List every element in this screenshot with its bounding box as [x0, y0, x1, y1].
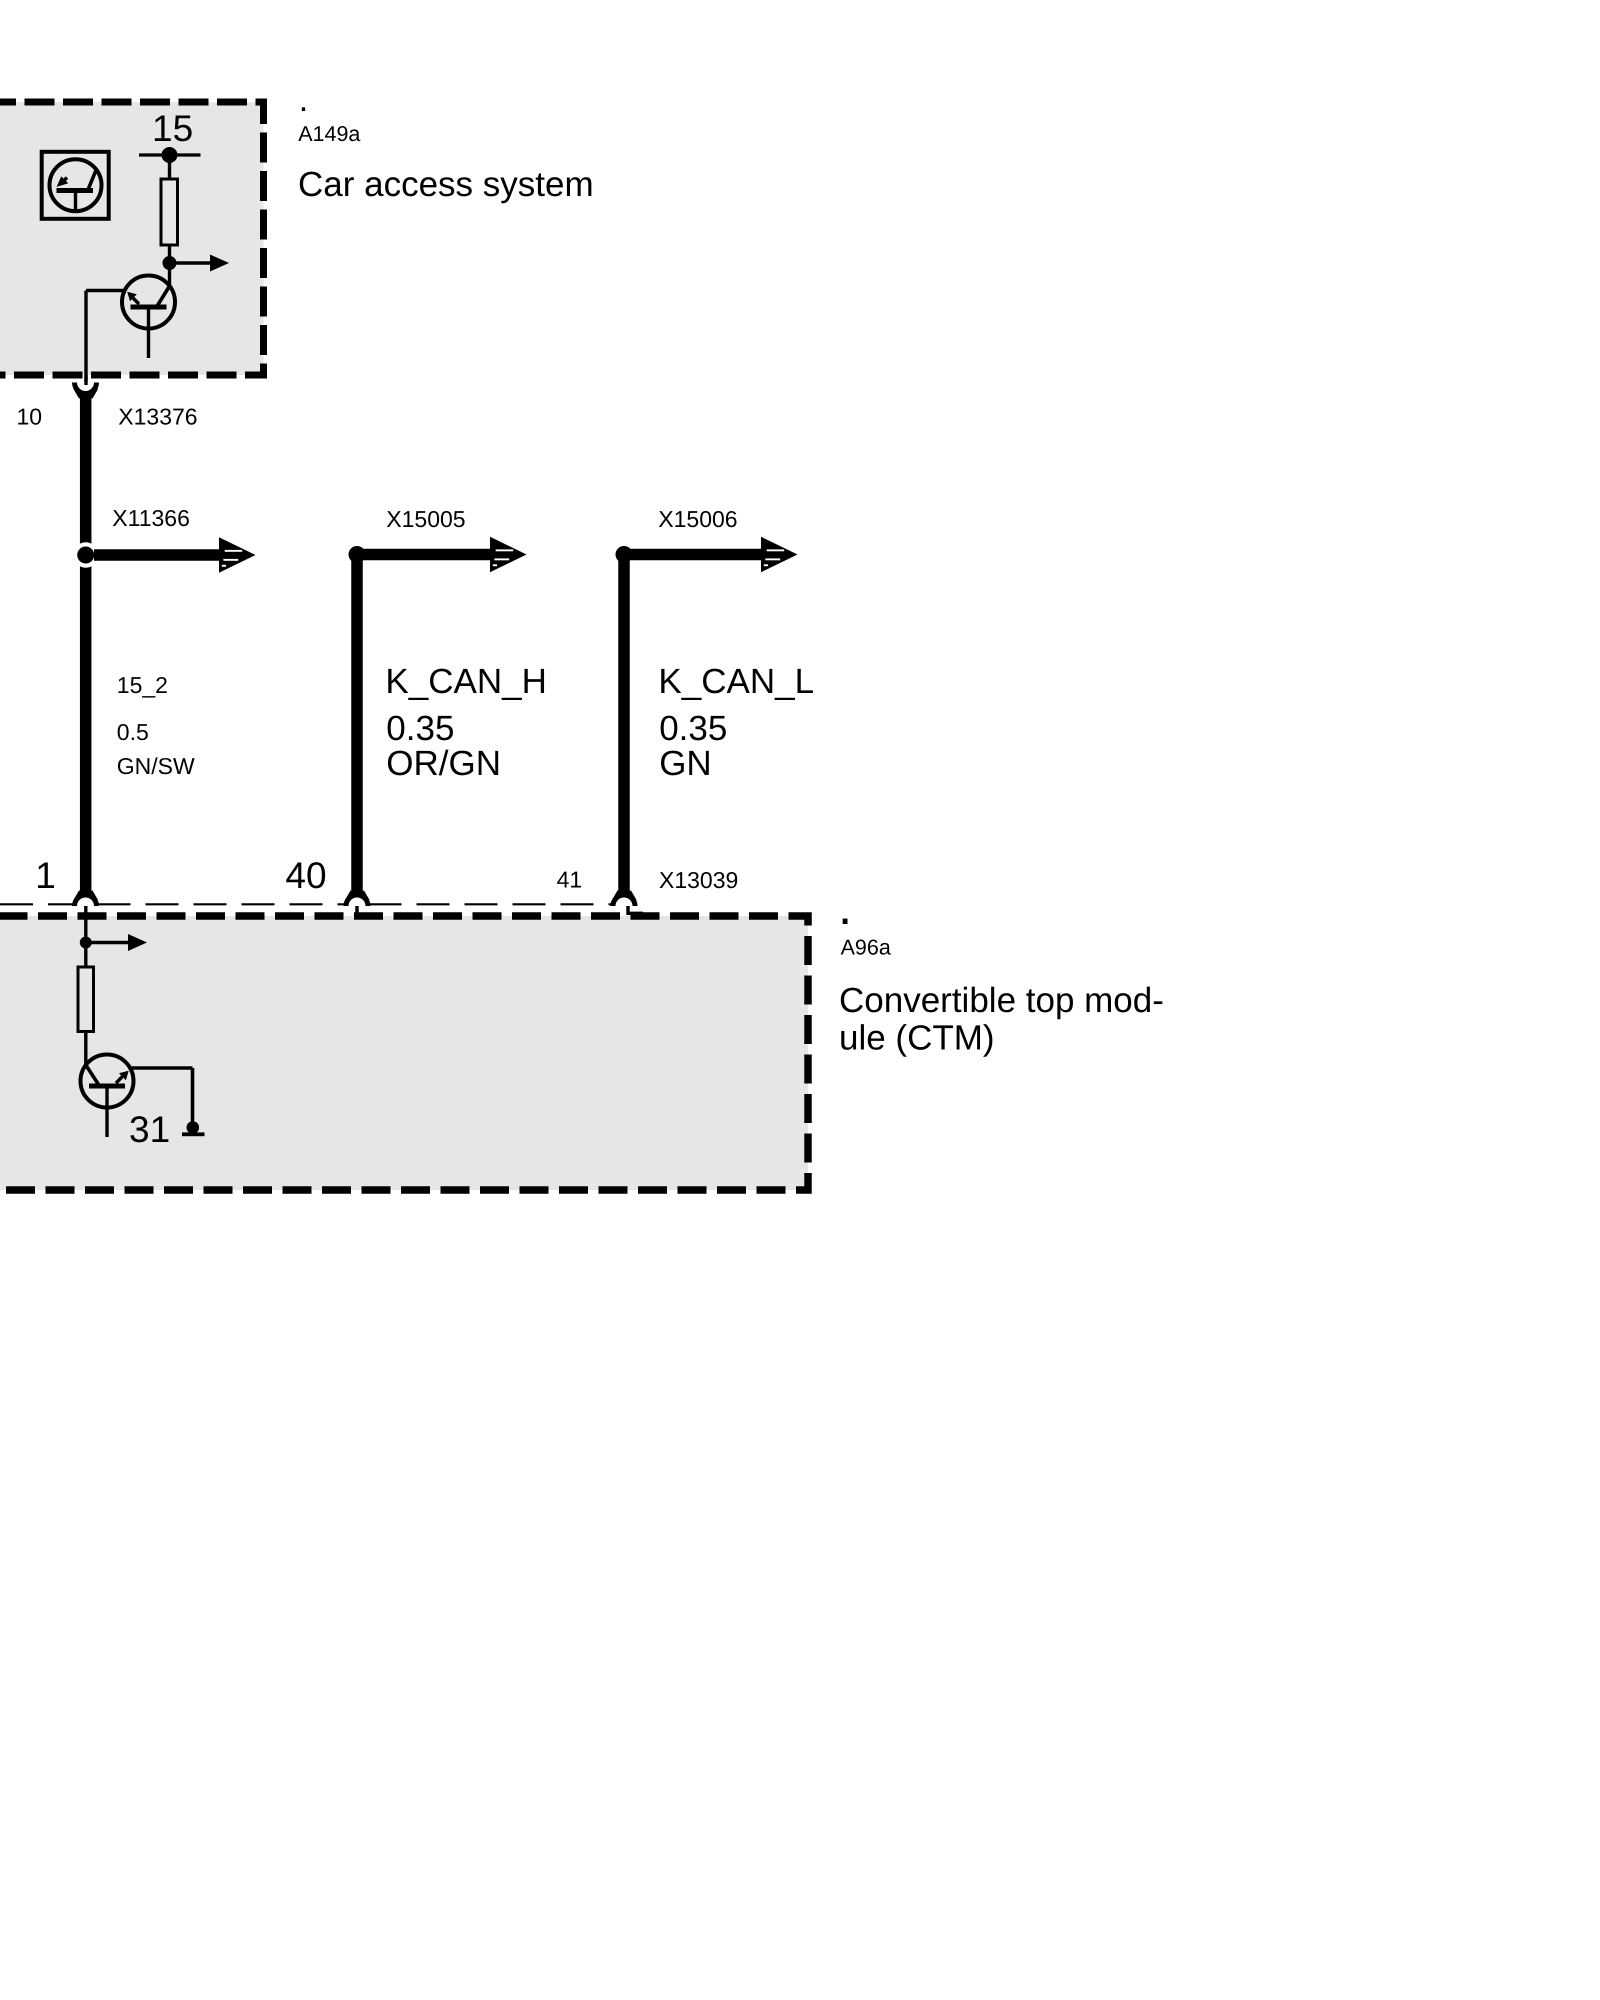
svg-text:A96a: A96a	[841, 936, 891, 960]
svg-text:X15006: X15006	[658, 506, 737, 532]
svg-text:X15005: X15005	[386, 506, 465, 532]
svg-text:1: 1	[35, 855, 56, 896]
svg-text:15_2: 15_2	[117, 672, 168, 698]
svg-text:OR/GN: OR/GN	[386, 744, 501, 783]
svg-text:ule (CTM): ule (CTM)	[839, 1019, 995, 1058]
svg-text:0.35: 0.35	[386, 709, 454, 748]
svg-text:.: .	[838, 878, 852, 935]
svg-text:15: 15	[152, 108, 193, 149]
svg-text:0.5: 0.5	[117, 719, 149, 745]
svg-text:31: 31	[129, 1109, 170, 1150]
svg-text:0.35: 0.35	[659, 709, 727, 748]
svg-text:GN: GN	[659, 744, 712, 783]
svg-text:K_CAN_H: K_CAN_H	[385, 662, 546, 701]
svg-text:A149a: A149a	[298, 122, 360, 146]
svg-text:GN/SW: GN/SW	[117, 753, 195, 779]
svg-text:X13039: X13039	[659, 867, 738, 893]
svg-text:X11366: X11366	[112, 505, 190, 531]
svg-text:X13376: X13376	[118, 404, 197, 430]
svg-text:.: .	[299, 81, 308, 119]
svg-text:Convertible top mod-: Convertible top mod-	[839, 981, 1164, 1020]
svg-text:10: 10	[17, 404, 43, 430]
svg-text:41: 41	[557, 867, 583, 893]
svg-text:K_CAN_L: K_CAN_L	[658, 662, 814, 701]
svg-text:40: 40	[285, 855, 326, 896]
svg-text:Car access system: Car access system	[298, 165, 594, 204]
